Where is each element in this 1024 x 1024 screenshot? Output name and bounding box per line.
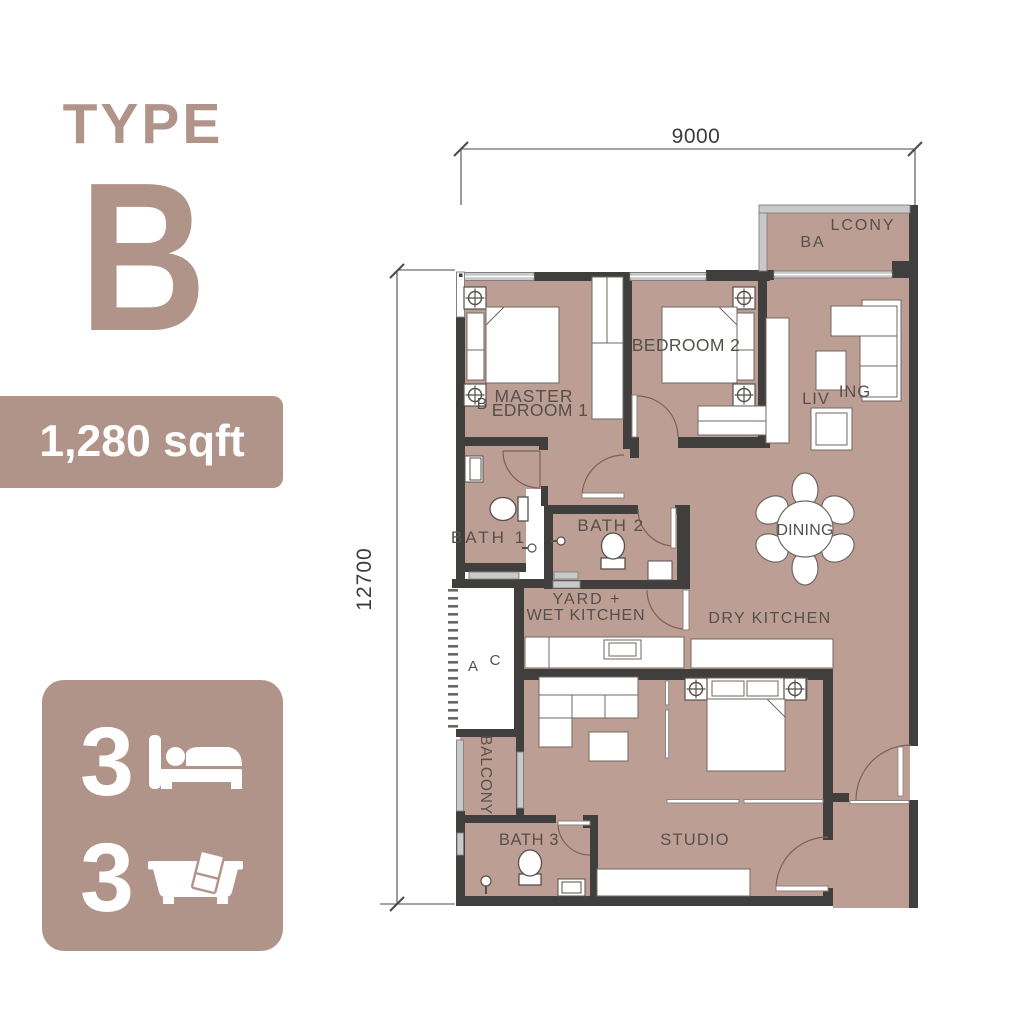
svg-text:A: A xyxy=(468,658,478,675)
svg-text:BEDROOM 2: BEDROOM 2 xyxy=(632,335,741,355)
svg-text:BATH 1: BATH 1 xyxy=(451,528,527,547)
svg-text:BA: BA xyxy=(800,234,825,251)
svg-text:BATH 2: BATH 2 xyxy=(577,516,644,535)
svg-text:9000: 9000 xyxy=(672,125,721,148)
svg-text:3: 3 xyxy=(80,823,134,932)
svg-text:DINING: DINING xyxy=(776,522,833,539)
svg-text:C: C xyxy=(490,652,501,669)
svg-text:1,280 sqft: 1,280 sqft xyxy=(39,417,244,466)
svg-text:3: 3 xyxy=(80,707,134,816)
svg-text:WET KITCHEN: WET KITCHEN xyxy=(527,607,646,624)
svg-text:BATH 3: BATH 3 xyxy=(499,831,559,849)
svg-text:LCONY: LCONY xyxy=(830,217,895,234)
svg-text:YARD +: YARD + xyxy=(552,591,621,608)
svg-text:12700: 12700 xyxy=(353,547,376,610)
svg-text:BALCONY: BALCONY xyxy=(477,735,494,815)
svg-text:LIV: LIV xyxy=(802,390,830,408)
svg-text:ING: ING xyxy=(839,383,871,401)
svg-text:B: B xyxy=(477,396,488,413)
svg-text:B: B xyxy=(79,140,206,376)
svg-text:EDROOM 1: EDROOM 1 xyxy=(492,400,589,420)
svg-text:DRY KITCHEN: DRY KITCHEN xyxy=(708,610,831,627)
svg-text:STUDIO: STUDIO xyxy=(660,831,730,849)
